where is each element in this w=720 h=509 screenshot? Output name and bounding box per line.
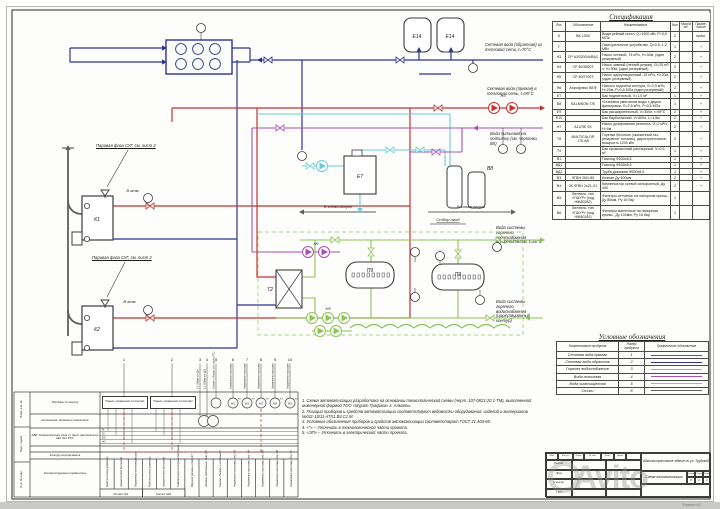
valve-icon <box>486 315 494 321</box>
title-block-cell: Подп. <box>601 453 614 460</box>
legend-cell <box>645 366 709 373</box>
spec-cell <box>680 205 693 219</box>
equipment-shapes <box>72 18 485 355</box>
title-block-cell <box>572 470 606 480</box>
legend-cell: Сетевая вода обратная <box>557 359 619 366</box>
pump-n3-tag: Н3 <box>500 93 506 98</box>
title-block-cell: ГИП <box>546 489 572 499</box>
spec-title: Спецификация <box>552 13 710 21</box>
legend-line-sample <box>651 376 703 377</box>
signal-number: 8 <box>260 357 263 362</box>
valve-icon <box>455 250 461 258</box>
spec-cell: В8 <box>553 99 566 109</box>
sheets-value: 2 <box>703 477 711 484</box>
title-block-cell <box>606 460 641 470</box>
spec-cell: Бак промывочный растворный, V=0,5 м³ <box>601 146 671 156</box>
signal-text: Управление насосами <box>230 363 233 389</box>
auto-column-label: Управление насосами, поз. Н7 <box>289 449 293 487</box>
softener-label: В8 <box>487 166 493 172</box>
instrument-bubble <box>476 296 485 305</box>
spec-cell <box>680 121 693 131</box>
notes-block: 1. Схема автоматизации разработана на ос… <box>302 398 538 435</box>
spec-grid: Поз.ОбозначениеНаименованиеКол.Масса ед.… <box>552 21 710 220</box>
spec-row: В5Вентиль, тип «ГШУР» (под НЖ80282)Фильт… <box>553 191 710 205</box>
spec-cell: Насос циркуляционный, 10 м³/ч, Н=20м, (о… <box>601 72 671 82</box>
atm2-label: В атм. <box>123 299 136 304</box>
spec-cell: 1 <box>671 99 680 109</box>
drain2-label: В канализацию <box>457 204 485 209</box>
valve-icon <box>264 57 272 63</box>
signal-number: 6 <box>232 357 235 362</box>
spec-cell: Н6 <box>553 83 566 93</box>
signal-number: 3 <box>199 357 202 362</box>
atm1-label: В атм. <box>126 188 139 193</box>
signal-text: 1,1 ОВмм от ДН <box>197 369 200 389</box>
meter-circle <box>193 44 204 55</box>
spec-row: В42К ЛГВН 2х21-Л1Компенсатор осевой силь… <box>553 181 710 191</box>
spec-cell: 1 <box>671 191 680 205</box>
stage-value: Р <box>687 477 695 484</box>
legend-cell <box>645 387 709 394</box>
meter-circle <box>210 44 221 55</box>
signal-text: Управление насосами <box>272 363 275 389</box>
title-block-cell: Разраб. <box>546 460 572 470</box>
legend-row: Горячее водоснабжение3 <box>557 366 709 373</box>
spec-cell <box>693 191 710 205</box>
spec-col-header: Поз. <box>553 22 566 32</box>
drawing-sheet: К1 К2 Е14 Е14 Е7 Т2 П9 П9 В8 Н3 Н5 Н6 В … <box>0 0 720 509</box>
spec-cell: + <box>693 83 710 93</box>
instrument-bubble <box>298 152 307 161</box>
legend: Условные обозначения Наименование продук… <box>556 333 708 395</box>
spec-row: КВК-1000Водогрейный котел, Q=1000 кВт, Р… <box>553 31 710 41</box>
heat-meter-circles <box>176 44 221 70</box>
auto-group-label: Котел №1 <box>114 492 129 496</box>
spec-cell: Фильтры сетчатые на напорном кронш., Ду … <box>601 191 671 205</box>
legend-cell: 4 <box>619 373 645 380</box>
legend-cell: 1 <box>619 352 645 359</box>
title-block-cell: Кол.уч. <box>558 453 573 460</box>
spec-cell: + <box>693 42 710 52</box>
spec-cell: Фильтры магнитные на напорном кронш., Ду… <box>601 205 671 219</box>
spec-cell: Насос сетевой, 75 м³/ч, Н=30м, (один рез… <box>601 52 671 62</box>
legend-cell <box>645 359 709 366</box>
title-block-cell <box>606 489 641 499</box>
spec-cell: Н7 <box>553 121 566 131</box>
spec-cell <box>680 99 693 109</box>
spec-cell <box>680 62 693 72</box>
spec-row: Т9Бак промывочный растворный, V=0,5 м³1+ <box>553 146 710 156</box>
legend-title: Условные обозначения <box>556 333 708 341</box>
note-line: 1. Схема автоматизации разработана на ос… <box>302 398 538 409</box>
spec-col-header: Кол. <box>671 22 680 32</box>
spec-cell: Насос дозирования реагента, G=2 м³/ч, Н=… <box>601 121 671 131</box>
instrument-bubble <box>197 24 206 33</box>
auto-column-label: Верхний уровень в баке Е7 <box>190 454 194 487</box>
auto-row-local: Приборы по месту <box>31 392 99 414</box>
note-line: 5. «ЭП» – Уточнить в электрической части… <box>302 430 538 435</box>
spec-cell: Вентиль, тип «ГШУР» (под НЖ80282) <box>566 205 601 219</box>
legend-header-row: Наименование продуктаНомер продуктаГрафи… <box>557 342 709 352</box>
spec-cell: + <box>693 146 710 156</box>
legend-line-sample <box>651 362 703 363</box>
spec-cell: Т9 <box>553 146 566 156</box>
signal-number: 9 <box>274 357 277 362</box>
spec-cell: Компенсатор осевой сильфонный, Ду 400 <box>601 181 671 191</box>
title-block-cell <box>572 489 606 499</box>
spec-cell <box>680 181 693 191</box>
title-block-cell: Дата <box>614 453 626 460</box>
legend-col-header: Графическое обозначение <box>645 342 709 352</box>
vessel1-label: П9 <box>367 268 374 274</box>
spec-cell: + <box>693 181 710 191</box>
sheet-value: 1 <box>695 477 703 484</box>
flow-arrow <box>540 237 545 242</box>
spec-cell <box>566 146 601 156</box>
spec-cell: 1 <box>671 205 680 219</box>
flow-arrow <box>299 209 304 214</box>
spec-row: Н5CP 40/2700ТНасос циркуляционный, 10 м³… <box>553 72 710 82</box>
spec-cell: 2 <box>671 121 680 131</box>
spec-row: Н3CP 40/3200/А/ВАСНасос сетевой, 75 м³/ч… <box>553 52 710 62</box>
flow-arrow <box>257 57 262 62</box>
spec-cell: Газогорелочное устройство, Q=0,5–1,2 МВт <box>601 42 671 52</box>
spec-cell: 2 <box>671 83 680 93</box>
legend-row: Вода химочищенная5 <box>557 380 709 387</box>
spec-cell: прим. <box>693 31 710 41</box>
auto-row-operator: Котельная. Комната оператора <box>31 414 99 428</box>
spec-cell: + <box>693 99 710 109</box>
boiler1-label: К1 <box>94 217 100 223</box>
spec-cell: Н5 <box>553 72 566 82</box>
valve-icon <box>146 203 154 209</box>
auto-column-label: Управление насосами, поз. Н3 <box>232 449 236 487</box>
valve-icon <box>368 248 374 256</box>
spec-row: В6Вентиль, тип «ГШУР» (под НЖ80282)Фильт… <box>553 205 710 219</box>
signal-text: Управление насосами <box>258 363 261 389</box>
title-block-cell <box>572 479 606 489</box>
spec-cell: 2 <box>671 31 680 41</box>
spec-cell <box>680 132 693 146</box>
auto-column-label: Авария котла (останов) <box>119 457 123 488</box>
legend-line-sample <box>651 390 703 391</box>
legend-line-sample <box>651 355 703 356</box>
instrument-bubble <box>517 145 526 154</box>
title-block-cell: Изм. <box>546 453 558 460</box>
auto-column-label: Работа котла (горение) <box>105 456 109 487</box>
hs-bubble-sup: ЭП <box>280 399 284 401</box>
boiler2-control-panel: Панель управления котлом №2 <box>150 396 196 409</box>
auto-row-loop: Контур регулирования <box>31 452 99 459</box>
hs-bubble-text: HS <box>273 401 277 405</box>
spec-cell: 2 <box>671 52 680 62</box>
spec-cell <box>680 42 693 52</box>
vessel2-label: П9 <box>455 272 462 278</box>
auto-column-label: Управление насосами, поз. Н5 <box>261 449 265 487</box>
valve-icon <box>306 163 314 169</box>
valve-icon <box>146 315 154 321</box>
spec-cell: 1 <box>671 146 680 156</box>
instrument-bubble <box>436 252 445 261</box>
legend-line-sample <box>651 383 703 384</box>
hs-bubble <box>211 398 221 408</box>
spec-cell: А12/ЛЕ 9Х <box>566 121 601 131</box>
io-label: AI <box>102 429 105 432</box>
spec-cell <box>566 42 601 52</box>
auto-column-label: Управление насосами, поз. Н4 <box>247 449 251 487</box>
auto-column-label: Сигнал «Пожар» в котельной <box>218 450 222 487</box>
meter-circle <box>210 59 221 70</box>
auto-column-label: Управление насосами, поз. Н6 <box>275 449 279 487</box>
format-note: Формат А3 <box>682 503 701 507</box>
legend-line-sample <box>651 369 703 370</box>
title-block-cell: Пров. <box>546 470 572 480</box>
hs-bubble-sup: ЭП <box>252 399 256 401</box>
spec-cell: CP 40/3500Т <box>566 62 601 72</box>
legend-row: Стоки8 <box>557 387 709 394</box>
auto-column-label: Уровень предельный, пом. ХВ <box>204 450 208 487</box>
drain1-label: В канализацию <box>324 204 352 209</box>
legend-grid: Наименование продуктаНомер продуктаГрафи… <box>556 341 709 395</box>
spec-cell <box>680 31 693 41</box>
signal-text: 1,1 ОВмм от ДН <box>204 369 207 389</box>
spec-cell: В6 <box>553 205 566 219</box>
io-label: DO <box>102 437 106 440</box>
legend-row: Сетевая вода обратная2 <box>557 359 709 366</box>
spec-cell: + <box>693 132 710 146</box>
hs-bubble-sup: ЭП <box>266 399 270 401</box>
spec-cell: К <box>553 31 566 41</box>
instrument-bubble <box>411 293 420 302</box>
pump-n5-tag: Н5 <box>325 306 331 311</box>
valve-icon <box>396 57 404 63</box>
auto-column-label: Температура контура отопления <box>176 444 180 487</box>
legend-cell: 3 <box>619 366 645 373</box>
legend-cell: 2 <box>619 359 645 366</box>
signal-number: 7 <box>246 357 249 362</box>
auto-group-label: Котел №2 <box>156 492 171 496</box>
spec-row: Н7А12/ЛЕ 9ХНасос дозирования реагента, G… <box>553 121 710 131</box>
spec-cell: В5 <box>553 191 566 205</box>
spec-cell <box>680 146 693 156</box>
hx-label: Т2 <box>267 287 273 293</box>
boiler1-control-panel: Панель управления котлом №1 <box>102 396 148 409</box>
spec-cell: ВК-1000 <box>566 31 601 41</box>
spec-cell: SALMSON Т/Е <box>566 99 601 109</box>
legend-cell <box>645 373 709 380</box>
spec-row: ГГазогорелочное устройство, Q=0,5–1,2 МВ… <box>553 42 710 52</box>
meter-circle <box>176 59 187 70</box>
sample-label: Отбор проб <box>436 217 460 222</box>
spec-cell <box>680 72 693 82</box>
title-block-cell: Лист <box>573 453 584 460</box>
spec-col-header: Приме-чание <box>693 22 710 32</box>
instrument-bubble <box>411 248 420 257</box>
title-block-cell: Н.контр. <box>546 479 572 489</box>
title-block-cell <box>572 460 606 470</box>
spec-cell: + <box>693 72 710 82</box>
legend-cell: Стоки <box>557 387 619 394</box>
spec-cell: 2К ЛГВН 2х21-Л1 <box>566 181 601 191</box>
spec-cell: + <box>693 52 710 62</box>
spec-row: В8SALMSON Т/ЕУстановка умягчения воды с … <box>553 99 710 109</box>
valve-icon <box>386 147 394 153</box>
spec-col-header: Наименование <box>601 22 671 32</box>
operator-bubble <box>208 416 219 427</box>
legend-cell: Горячее водоснабжение <box>557 366 619 373</box>
spec-cell: Н3 <box>553 52 566 62</box>
sheet-title: Схема автоматизации <box>641 471 687 484</box>
spec-cell: Водогрейный котел, Q=1000 кВт, Р=0,6 МПа <box>601 31 671 41</box>
title-block-cell: № док. <box>584 453 601 460</box>
project-name: Административное здание по ул. Трудовой <box>641 453 711 471</box>
signal-number: 1 <box>123 357 126 362</box>
valve-icon <box>331 237 339 243</box>
spec-cell <box>693 205 710 219</box>
signal-number: 10 <box>288 357 293 362</box>
spec-cell: В4 <box>553 181 566 191</box>
title-block-cell <box>606 479 641 489</box>
hs-bubble-sup: ЭП <box>238 399 242 401</box>
signal-number: 4 <box>206 357 209 362</box>
flow-arrow <box>473 125 478 130</box>
spec-cell: Вентиль, тип «ГШУР» (под НЖ80282) <box>566 191 601 205</box>
auto-row-cabinet: АБК. Операторская (пом.1). Щит автоматик… <box>31 428 99 446</box>
tank-e7-label: Е7 <box>357 174 363 180</box>
title-block-cell <box>606 470 641 480</box>
spec-cell <box>680 52 693 62</box>
hs-bubble-text: HS <box>245 401 249 405</box>
legend-cell <box>645 380 709 387</box>
hs-bubble-sup: ЭП <box>295 399 299 401</box>
margin-stamp-label: Инв. № подл. <box>19 470 23 488</box>
margin-stamp-label: Подп. и дата <box>19 435 23 452</box>
spec-cell: 1 <box>671 42 680 52</box>
spec-cell: Насос зимний (летний режим), G=25 м³/ч, … <box>601 62 671 72</box>
hs-bubble-text: HS <box>288 401 292 405</box>
spec-header-row: Поз.ОбозначениеНаименованиеКол.Масса ед.… <box>553 22 710 32</box>
legend-cell: Вода питьевая <box>557 373 619 380</box>
spec-cell: 2 <box>671 62 680 72</box>
tank-e14a-label: Е14 <box>413 34 422 40</box>
flow-arrow <box>525 315 530 320</box>
signal-text: Сигнал «Пожар» (от щита ПС) <box>213 351 216 389</box>
spec-cell: Насосы подпитки контура, G=2,5 м³/ч, Н=2… <box>601 83 671 93</box>
signal-number: 2 <box>171 357 174 362</box>
legend-cell <box>645 352 709 359</box>
tank-e14b-label: Е14 <box>446 34 455 40</box>
spec-cell: 2 <box>671 72 680 82</box>
title-block-cell <box>626 453 641 460</box>
legend-col-header: Номер продукта <box>619 342 645 352</box>
flow-arrow <box>511 209 516 214</box>
legend-cell: 8 <box>619 387 645 394</box>
spec-row: Т8MULTICALOR 170.АВГорелки блочные (сжиж… <box>553 132 710 146</box>
meter-circle <box>193 59 204 70</box>
io-label: AO <box>102 441 106 444</box>
spec-cell: 2 <box>671 132 680 146</box>
pump-n6-tag: Н6 <box>313 241 319 246</box>
auto-row-params: Контролируемые параметры <box>31 459 99 489</box>
spec-cell: Аэрофлекс ВЕФ <box>566 83 601 93</box>
spec-cell: + <box>693 121 710 131</box>
legend-cell: 5 <box>619 380 645 387</box>
margin-stamp-label: Взам. инв. № <box>19 400 23 417</box>
spec-row: Н4CP 40/3500ТНасос зимний (летний режим)… <box>553 62 710 72</box>
spec-cell: Г <box>553 42 566 52</box>
boiler2-label: К2 <box>94 327 100 333</box>
legend-row: Вода питьевая4 <box>557 373 709 380</box>
instrument-bubble <box>144 306 153 315</box>
valve-icon <box>276 125 284 131</box>
spec-cell: Горелки блочные (сжиженный газ, резервно… <box>601 132 671 146</box>
instrument-bubble <box>499 145 508 154</box>
auto-column-label: Работа котла (горение) <box>148 456 152 487</box>
company-cell <box>641 484 711 498</box>
spec-cell: Установка умягчения воды с двумя фильтра… <box>601 99 671 109</box>
spec-cell: CP 40/2700Т <box>566 72 601 82</box>
signal-text: Управление насосами <box>244 363 247 389</box>
spec-cell: Т8 <box>553 132 566 146</box>
title-block: Административное здание по ул. Трудовой … <box>545 452 710 497</box>
flow-arrow <box>540 105 545 110</box>
signal-text: Управление насосами <box>287 363 290 389</box>
instrument-bubble <box>144 194 153 203</box>
io-label: DI <box>102 433 105 436</box>
spec-cell: 2 <box>671 181 680 191</box>
instrument-bubble <box>493 243 502 252</box>
hs-bubble-text: HS <box>259 401 263 405</box>
legend-cell: Сетевая вода прямая <box>557 352 619 359</box>
spec-row: Н6Аэрофлекс ВЕФНасосы подпитки контура, … <box>553 83 710 93</box>
spec-cell: MULTICALOR 170.АВ <box>566 132 601 146</box>
spec-cell: + <box>693 62 710 72</box>
legend-col-header: Наименование продукта <box>557 342 619 352</box>
legend-cell: Вода химочищенная <box>557 380 619 387</box>
spec-col-header: Масса ед. <box>680 22 693 32</box>
auto-column-label: Управление котлом (розжиг) <box>133 451 137 487</box>
spec-col-header: Обозначение <box>566 22 601 32</box>
instrument-bubble <box>469 64 478 73</box>
specification-table: Спецификация Поз.ОбозначениеНаименование… <box>552 13 710 220</box>
hs-bubble-text: HS <box>231 401 235 405</box>
legend-row: Сетевая вода прямая1 <box>557 352 709 359</box>
auto-column-label: Авария котла (останов) <box>162 457 166 488</box>
valve-icon <box>434 105 442 111</box>
meter-circle <box>176 44 187 55</box>
spec-cell: CP 40/3200/А/ВАС <box>566 52 601 62</box>
note-line: 2. Позиции приборов и средств автоматиза… <box>302 409 538 420</box>
spec-cell: Н4 <box>553 62 566 72</box>
spec-cell <box>680 191 693 205</box>
spec-cell <box>680 83 693 93</box>
